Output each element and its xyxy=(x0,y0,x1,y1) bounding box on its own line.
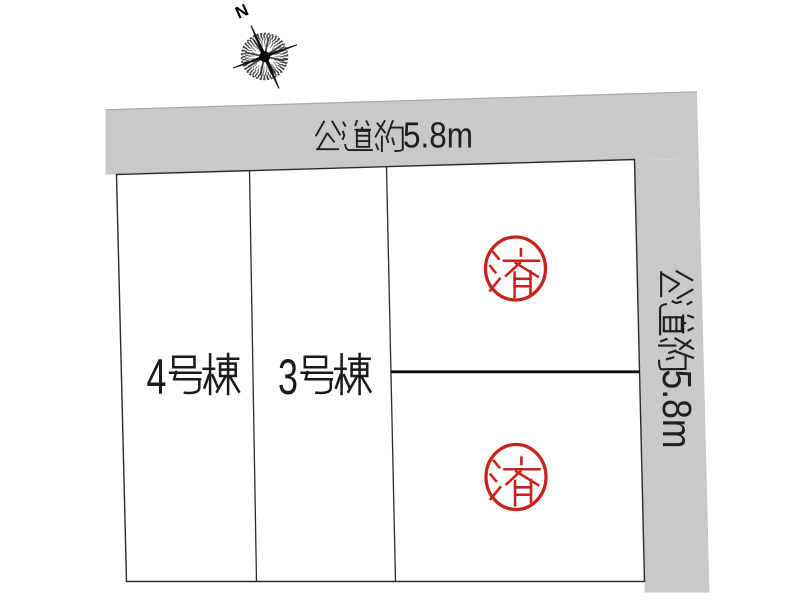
svg-text:3: 3 xyxy=(278,349,298,405)
svg-text:4: 4 xyxy=(147,349,167,405)
